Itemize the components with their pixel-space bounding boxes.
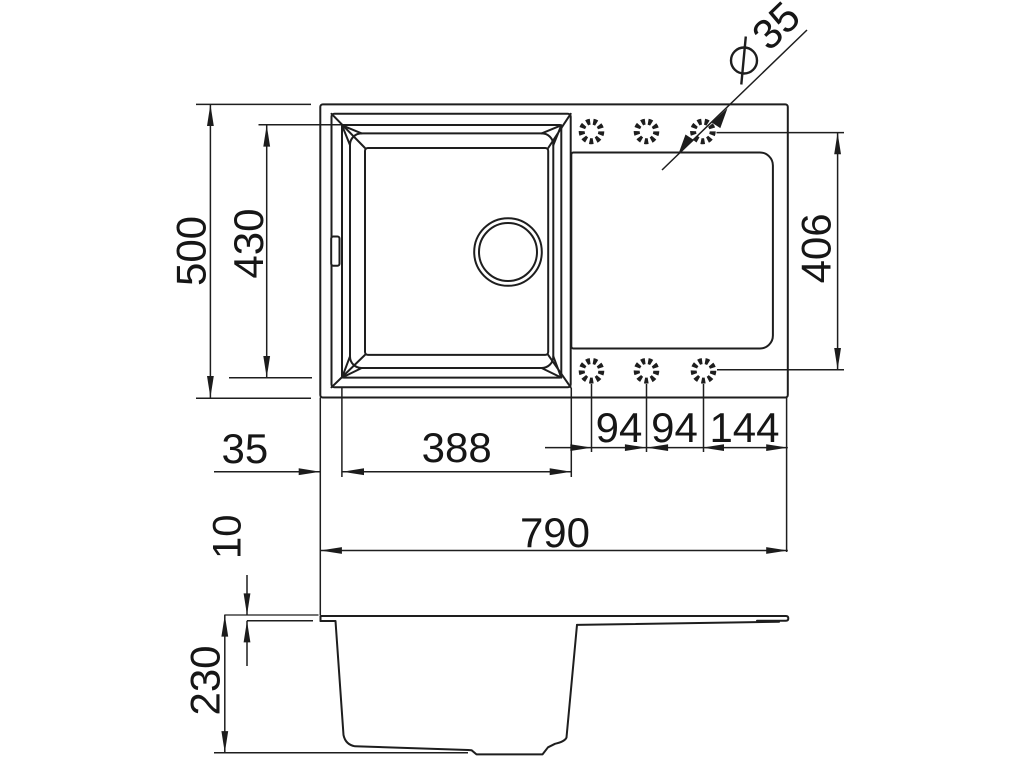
svg-text:10: 10: [206, 514, 250, 559]
svg-text:500: 500: [168, 216, 215, 286]
svg-text:35: 35: [222, 425, 269, 472]
svg-text:790: 790: [520, 509, 590, 556]
svg-text:230: 230: [182, 645, 229, 715]
svg-text:406: 406: [793, 213, 840, 283]
svg-text:388: 388: [422, 424, 492, 471]
svg-text:430: 430: [225, 209, 272, 279]
svg-text:144: 144: [709, 404, 779, 451]
svg-text:94: 94: [596, 404, 643, 451]
svg-text:94: 94: [651, 404, 698, 451]
